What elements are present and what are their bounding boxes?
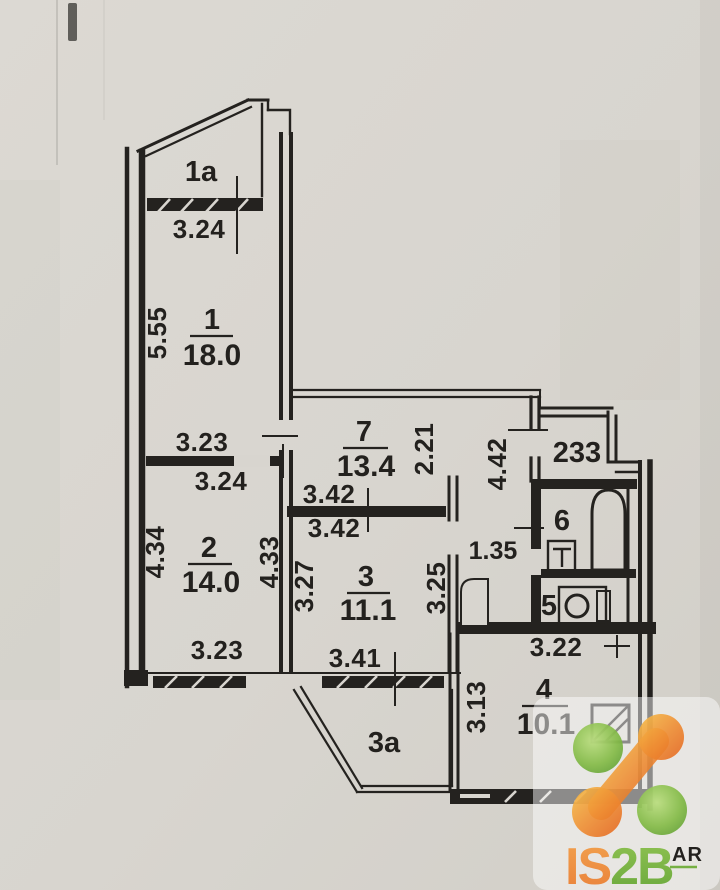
floor-plan-scan: 1a 3.24 5.55 1 18.0 3.23 7 13.4 2.21 4.4… — [0, 0, 720, 890]
dim-room4-left-height: 3.13 — [461, 681, 491, 734]
watermark-text: IS2B — [565, 838, 673, 890]
room-1-number: 1 — [204, 304, 220, 336]
dim-room2-top-width: 3.24 — [195, 466, 248, 496]
dim-room7-bottom-width: 3.42 — [303, 479, 356, 509]
dim-balcony-1a-width: 3.24 — [173, 214, 226, 244]
dim-room2-bottom-width: 3.23 — [191, 635, 244, 665]
dim-room3-top-width: 3.42 — [308, 513, 361, 543]
room-3a-number: 3a — [368, 727, 401, 759]
scanned-floor-plan-page: 1a 3.24 5.55 1 18.0 3.23 7 13.4 2.21 4.4… — [0, 0, 720, 890]
room-1a-number: 1a — [185, 156, 218, 188]
dim-room2-right-height: 4.33 — [254, 536, 284, 589]
watermark-part1: IS — [565, 838, 610, 890]
door-leaf-icon — [461, 579, 488, 626]
dim-room1-width: 3.23 — [176, 427, 229, 457]
room-5-number: 5 — [541, 590, 557, 622]
watermark-superscript: AR — [672, 844, 703, 866]
unit-number: 233 — [553, 437, 601, 469]
watermark-part2: 2B — [610, 838, 673, 890]
room-3-number: 3 — [358, 561, 374, 593]
dim-room3-bottom-width: 3.41 — [329, 643, 382, 673]
dim-room3-right-height: 3.25 — [421, 562, 451, 615]
room-3-area: 11.1 — [340, 594, 397, 627]
dim-room2-left-height: 4.34 — [140, 526, 170, 579]
dim-corridor-width: 1.35 — [469, 537, 518, 565]
dim-room3-left-height: 3.27 — [289, 560, 319, 613]
dim-wc-width: 3.22 — [530, 632, 583, 662]
scan-mark — [68, 3, 77, 41]
room-7-number: 7 — [356, 416, 372, 448]
watermark-logo: IS2B AR — [533, 697, 720, 890]
room-1-area: 18.0 — [183, 339, 241, 372]
dim-room7-inner-height: 2.21 — [409, 423, 439, 476]
dim-room1-height: 5.55 — [142, 307, 172, 360]
room-2-number: 2 — [201, 532, 217, 564]
dim-hall-height: 4.42 — [482, 438, 512, 491]
room-2-area: 14.0 — [182, 566, 240, 599]
room-6-number: 6 — [554, 505, 570, 537]
